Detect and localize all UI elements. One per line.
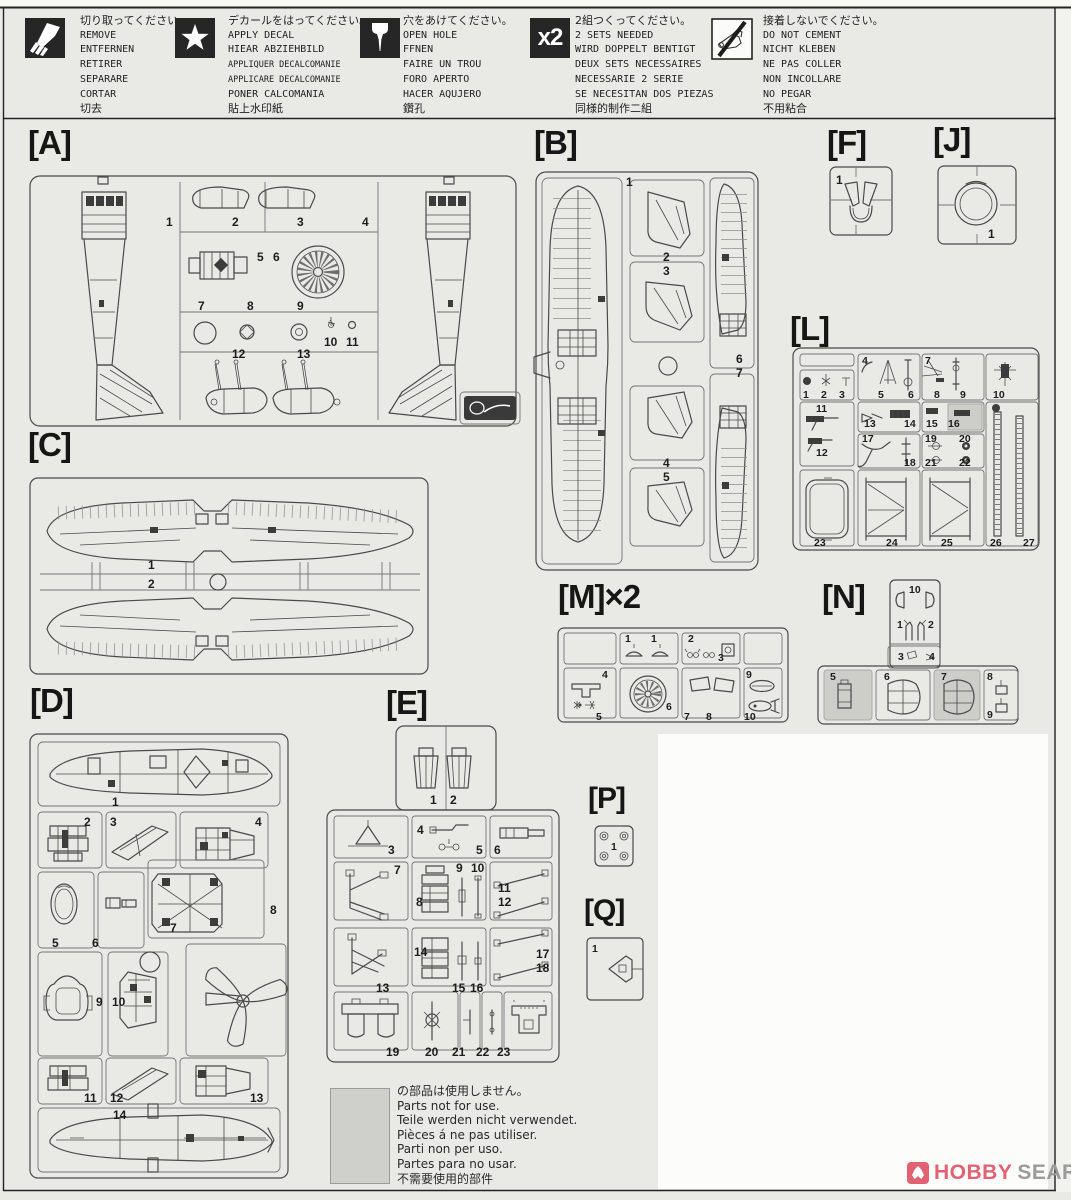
part-number: 10 [909, 584, 921, 596]
part-22-drawing [490, 1010, 494, 1034]
part-number: 8 [247, 299, 254, 313]
part-number: 8 [270, 903, 277, 917]
part-number: 13 [864, 418, 876, 430]
part-number: 6 [494, 843, 501, 857]
parts-n10-n1-n2-drawing [896, 592, 934, 640]
part-number: 7 [198, 299, 205, 313]
part-number: 5 [596, 711, 602, 723]
sprue-l-diagram: 1 2 3 4 5 6 7 8 9 10 11 12 13 14 15 16 1… [793, 348, 1039, 550]
part-9-seat-drawing [44, 976, 92, 1020]
part-8-drawing [422, 866, 448, 912]
part-number: 10 [112, 995, 126, 1009]
part-number: 1 [430, 793, 437, 807]
part-1-windscreen-drawing [845, 182, 877, 222]
part-5-drawing [648, 482, 692, 526]
part-number: 6 [273, 250, 280, 264]
part-number: 7 [394, 863, 401, 877]
part-17-drawing [494, 930, 548, 946]
part-n6-drawing [888, 680, 920, 714]
part-number: 20 [959, 433, 971, 445]
part-number: 4 [602, 669, 608, 681]
part-number: 3 [297, 215, 304, 229]
sprue-d-diagram: 1 2 3 4 5 6 7 8 9 10 11 12 13 14 [30, 734, 289, 1178]
part-number: 25 [941, 537, 953, 549]
part-number: 1 [148, 558, 155, 572]
part-number: 11 [816, 403, 827, 415]
part-number: 22 [959, 457, 971, 469]
part-number: 16 [470, 981, 484, 995]
part-5-drawing [51, 884, 77, 924]
part-9-drawing [291, 324, 307, 340]
part-number: 5 [663, 470, 670, 484]
part-number: 12 [498, 895, 512, 909]
part-4-drawing [648, 392, 692, 438]
part-13-drawing [196, 1066, 250, 1096]
part-2-drawing [648, 192, 690, 248]
part-number: 1 [836, 173, 843, 187]
part-3-drawing [348, 820, 388, 846]
part-number: 5 [52, 936, 59, 950]
part-number: 2 [148, 577, 155, 591]
hasegawa-logo [460, 392, 520, 424]
parts-m2-m3-drawing [685, 644, 734, 658]
parts-1-2-3-drawing [803, 374, 850, 386]
part-number: 18 [904, 457, 916, 469]
gray-shading-swatch [330, 1088, 390, 1184]
part-25-drawing [930, 478, 970, 540]
part-number: 11 [498, 881, 511, 895]
part-8-drawing [240, 325, 254, 339]
part-21-drawing [463, 1010, 470, 1034]
part-number: 14 [113, 1108, 127, 1122]
part-number: 22 [476, 1045, 490, 1059]
part-1-drawing [414, 748, 438, 788]
sprue-f-diagram: 1 [830, 167, 892, 235]
part-number: 24 [886, 537, 898, 549]
part-number: 23 [497, 1045, 511, 1059]
part-16-drawing [475, 942, 481, 980]
part-number: 23 [814, 537, 826, 549]
part-number: 1 [988, 227, 995, 241]
part-10-drawing [328, 317, 335, 328]
part-number: 9 [297, 299, 304, 313]
part-13-drawing [273, 360, 340, 414]
parts-4-5-6-drawing [862, 360, 912, 390]
parts-m4-m5-drawing [572, 684, 600, 709]
part-number: 12 [110, 1091, 124, 1105]
part-20-drawing [424, 1002, 440, 1040]
part-number: 6 [884, 671, 890, 683]
part-6-drawing [292, 246, 344, 298]
part-15-drawing [458, 942, 466, 980]
part-number: 8 [416, 895, 423, 909]
part-number: 17 [536, 947, 550, 961]
sprue-diagrams: 1 2 3 4 5 6 7 8 9 10 11 12 13 [0, 0, 1071, 1200]
part-number: 26 [990, 537, 1002, 549]
part-number: 1 [625, 633, 631, 645]
part-number: 8 [706, 711, 712, 723]
part-number: 7 [170, 921, 177, 935]
parts-m7-m8-drawing [690, 677, 734, 692]
part-number: 2 [84, 815, 91, 829]
part-number: 16 [948, 418, 960, 430]
sprue-a-diagram: 1 2 3 4 5 6 7 8 9 10 11 12 13 [30, 176, 520, 426]
part-number: 10 [744, 711, 756, 723]
part-number: 4 [417, 823, 424, 837]
part-23-drawing [512, 998, 546, 1033]
part-number: 3 [663, 264, 670, 278]
part-number: 1 [592, 943, 598, 955]
part-11-drawing [349, 322, 356, 329]
part-number: 4 [862, 355, 868, 367]
part-23-drawing [806, 478, 848, 540]
sprue-q-diagram: 1 [587, 938, 643, 1000]
part-number: 6 [908, 389, 914, 401]
part-number: 10 [471, 861, 485, 875]
part-1-float-top-drawing [50, 749, 272, 795]
part-number: 5 [878, 389, 884, 401]
part-number: 11 [346, 335, 359, 349]
part-4-drawing [196, 828, 254, 860]
sprue-b-diagram: 1 2 3 4 5 6 7 [534, 172, 758, 570]
part-number: 7 [941, 671, 947, 683]
blank-white-region [658, 734, 1048, 1189]
part-number: 1 [651, 633, 657, 645]
part-number: 19 [925, 433, 937, 445]
part-number: 9 [746, 669, 752, 681]
part-number: 12 [232, 347, 246, 361]
part-number: 9 [960, 389, 966, 401]
part-number: 21 [925, 457, 937, 469]
part-8-propeller-drawing [203, 965, 289, 1048]
parts-m1-domes-drawing [626, 644, 668, 656]
part-2-wing-drawing [47, 598, 413, 660]
part-7-drawing [152, 874, 222, 932]
instruction-sheet-page: 切り取ってください。REMOVE ENTFERNENRETIRER SEPARA… [0, 0, 1071, 1200]
part-1-wing-drawing [47, 500, 413, 562]
part-number: 18 [536, 961, 550, 975]
part-12-drawing [206, 360, 267, 414]
sprue-c-runner [40, 562, 420, 590]
part-number: 3 [110, 815, 117, 829]
part-number: 9 [96, 995, 103, 1009]
part-6-drawing [500, 828, 544, 838]
part-7-drawing [194, 322, 216, 344]
part-number: 4 [929, 651, 935, 663]
parts-26-27-drawing [992, 404, 1023, 536]
part-number: 1 [626, 175, 633, 189]
part-number: 15 [452, 981, 466, 995]
part-1-wing-drawing [534, 186, 608, 542]
hobby-search-watermark: HOBBY SEARCH [907, 1161, 1071, 1185]
part-2-drawing [48, 826, 88, 861]
part-number: 10 [993, 389, 1005, 401]
watermark-brand-text: HOBBY [934, 1161, 1012, 1185]
part-10-drawing [994, 362, 1016, 386]
part-number: 10 [324, 335, 338, 349]
part-number: 8 [987, 671, 993, 683]
part-number: 1 [611, 841, 617, 853]
part-11-drawing [48, 1066, 88, 1090]
part-number: 14 [904, 418, 916, 430]
part-q1-drawing [609, 956, 643, 982]
part-10-drawing [475, 876, 481, 918]
part-number: 17 [862, 433, 874, 445]
part-number: 5 [257, 250, 264, 264]
part-6-drawing [716, 184, 746, 336]
part-number: 5 [476, 843, 483, 857]
part-11-drawing [806, 416, 838, 430]
part-number: 1 [803, 389, 809, 401]
parts-m9-m10-drawing [749, 681, 779, 714]
part-number: 3 [388, 843, 395, 857]
part-2-drawing [447, 748, 471, 788]
part-5-drawing [189, 252, 247, 279]
part-3-drawing [646, 282, 692, 330]
part-4-drawing [430, 825, 468, 833]
part-14-float-bottom-drawing [50, 1104, 274, 1172]
part-1-ring-drawing [955, 182, 997, 226]
part-number: 9 [987, 709, 993, 721]
hobby-search-logo-icon [907, 1162, 929, 1184]
part-number: 2 [232, 215, 239, 229]
part-m6-wheel-drawing [630, 676, 666, 712]
part-7-drawing [346, 870, 388, 920]
part-13-drawing [348, 934, 386, 974]
watermark-suffix-text: SEARCH [1017, 1161, 1071, 1185]
part-number: 3 [839, 389, 845, 401]
part-19-drawing [342, 999, 398, 1037]
part-number: 20 [425, 1045, 439, 1059]
part-number: 13 [376, 981, 390, 995]
part-number: 2 [450, 793, 457, 807]
part-number: 12 [816, 447, 828, 459]
part-number: 4 [255, 815, 262, 829]
sprue-m-diagram: 1 1 2 3 4 5 6 7 8 9 10 [558, 628, 788, 723]
part-number: 3 [718, 652, 724, 664]
part-number: 4 [362, 215, 369, 229]
part-number: 2 [928, 619, 934, 631]
part-number: 1 [897, 619, 903, 631]
part-number: 5 [830, 671, 836, 683]
part-number: 2 [663, 250, 670, 264]
sprue-j-diagram: 1 [938, 166, 1016, 244]
part-number: 13 [250, 1091, 264, 1105]
part-number: 2 [821, 389, 827, 401]
part-6-drawing [106, 898, 136, 908]
part-number: 6 [666, 701, 672, 713]
part-number: 6 [736, 352, 743, 366]
part-3-drawing [112, 826, 168, 860]
part-number: 19 [386, 1045, 400, 1059]
part-3-drawing [259, 187, 315, 208]
part-number: 1 [166, 215, 173, 229]
part-number: 8 [934, 389, 940, 401]
part-number: 14 [414, 945, 428, 959]
part-number: 4 [663, 456, 670, 470]
part-number: 7 [736, 366, 743, 380]
part-10-drawing [120, 972, 156, 1028]
part-number: 9 [456, 861, 463, 875]
part-2-drawing [193, 187, 249, 208]
part-number: 2 [688, 633, 694, 645]
sprue-p-diagram: 1 [595, 826, 633, 866]
part-24-drawing [866, 478, 906, 540]
sprue-n-diagram: 10 1 2 3 4 5 6 7 8 9 [818, 580, 1018, 724]
part-number: 21 [452, 1045, 466, 1059]
part-9-drawing [459, 878, 465, 916]
part-number: 1 [112, 795, 119, 809]
parts-n8-n9-drawing [996, 680, 1007, 712]
part-7-drawing [716, 406, 746, 558]
part-number: 15 [926, 418, 938, 430]
part-number: 7 [925, 355, 931, 367]
part-number: 27 [1023, 537, 1035, 549]
sprue-e-diagram: 1 2 3 4 5 6 7 8 9 10 11 12 13 14 15 16 1… [327, 726, 559, 1062]
parts-not-for-use-text: の部品は使用しません。Parts not for use. Teile werd… [397, 1084, 617, 1186]
part-number: 3 [898, 651, 904, 663]
part-number: 7 [684, 711, 690, 723]
part-number: 13 [297, 347, 311, 361]
part-number: 6 [92, 936, 99, 950]
part-number: 11 [84, 1091, 97, 1105]
part-5-drawing [439, 839, 459, 850]
sprue-c-diagram: 1 2 [30, 478, 428, 674]
